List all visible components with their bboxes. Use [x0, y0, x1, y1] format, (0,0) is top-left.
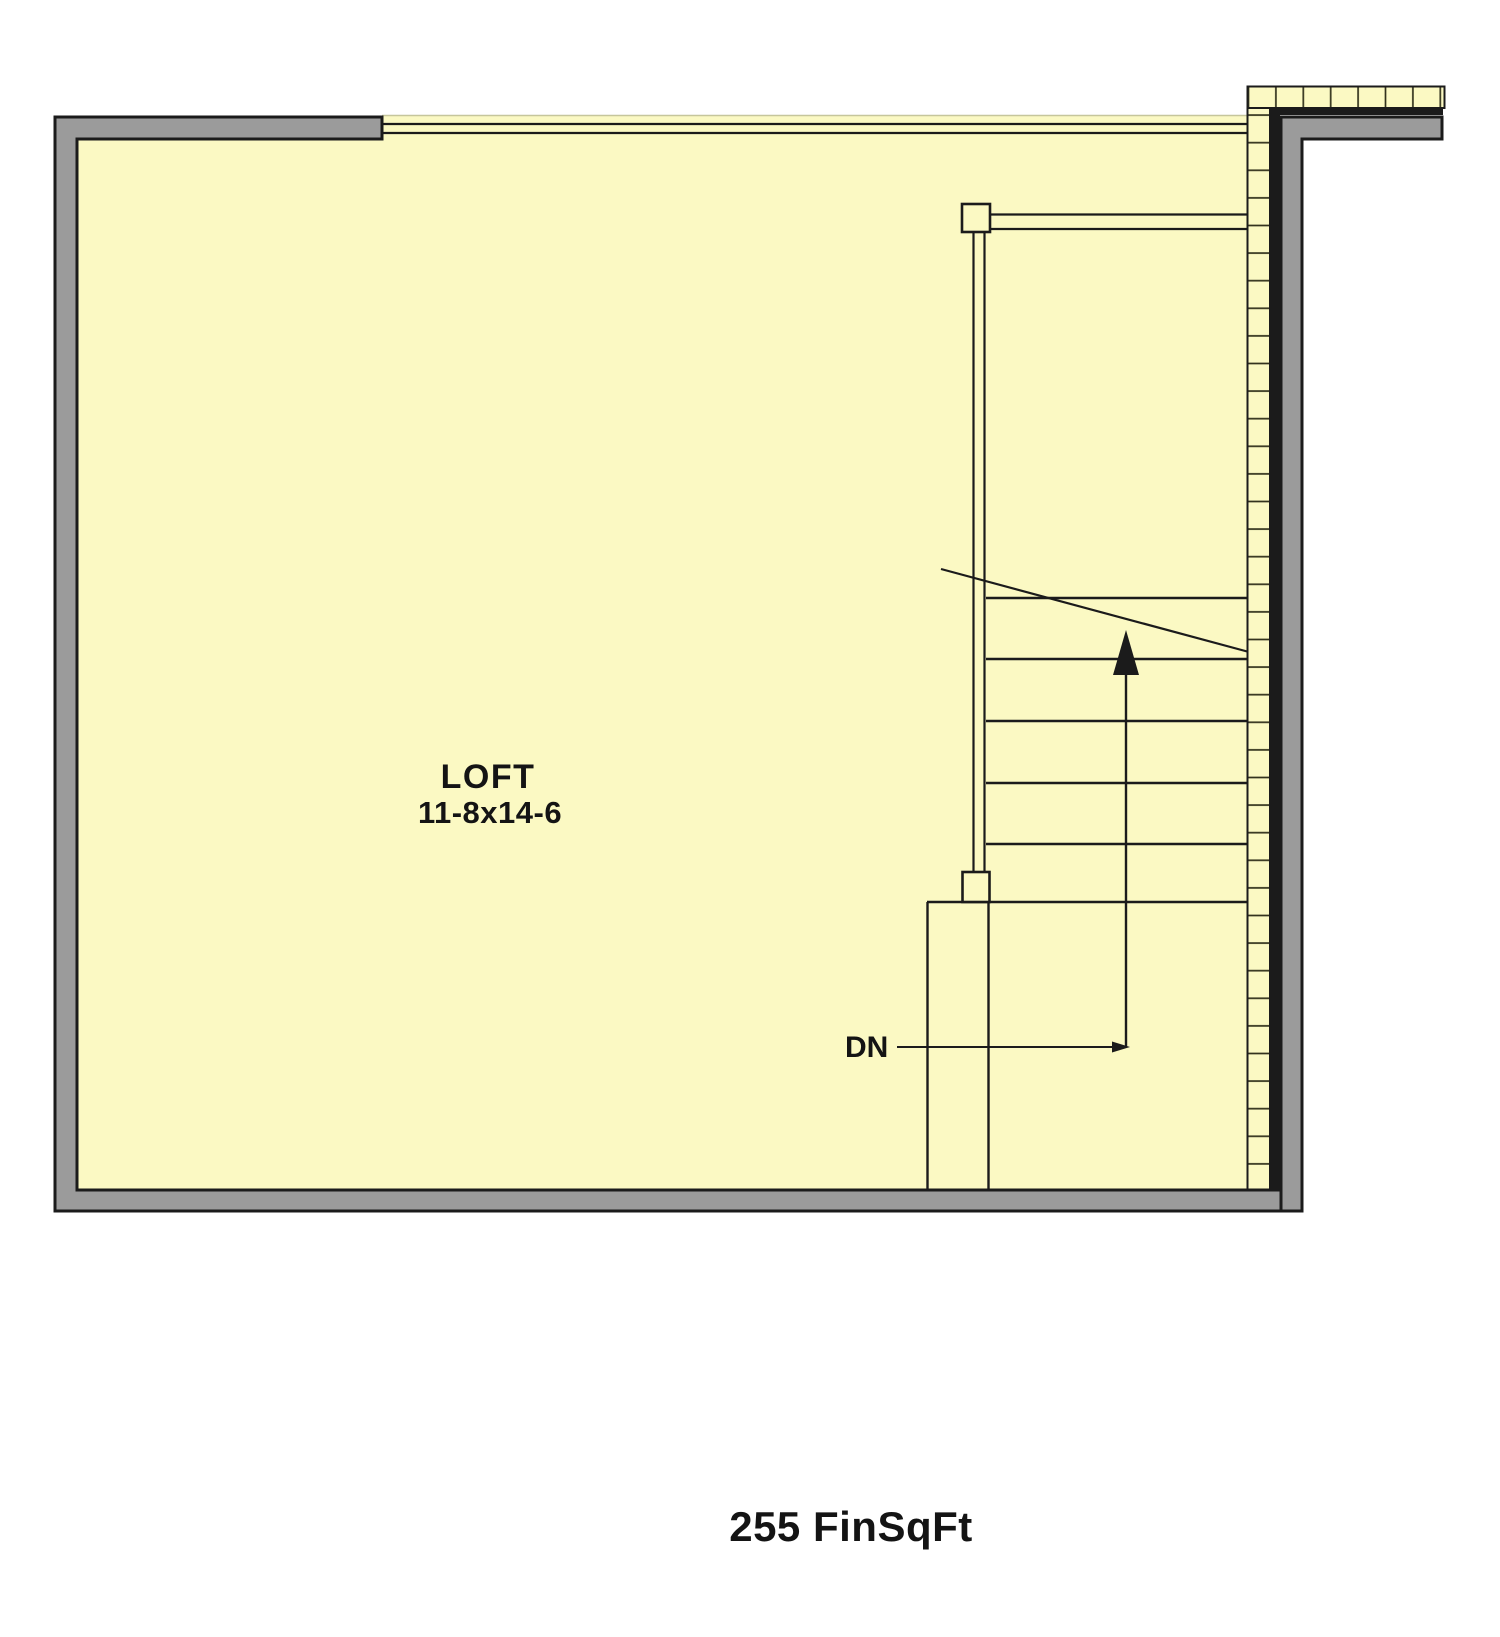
wall-hatch-top-ticks: [1248, 87, 1445, 109]
loft-floorplan-canvas: LOFT 11-8x14-6 DN 255 FinSqFt: [0, 0, 1500, 1637]
loft-floor-area: [57, 115, 1270, 1191]
stair-down-label: DN: [845, 1031, 888, 1064]
room-label: LOFT: [441, 758, 536, 796]
area-label: 255 FinSqFt: [729, 1503, 973, 1550]
railing-newel-post-top: [962, 204, 990, 232]
room-dimensions-label: 11-8x14-6: [418, 795, 562, 830]
wall-hatch-top: [1248, 87, 1445, 116]
floorplan-page: LOFT 11-8x14-6 DN 255 FinSqFt: [0, 0, 1500, 1637]
exterior-wall-right: [1281, 117, 1442, 1211]
wall-hatch-right-ticks: [1248, 87, 1271, 1191]
wall-hatch-right: [1248, 87, 1281, 1192]
wall-hatch-right-divider: [1271, 107, 1280, 1191]
wall-hatch-top-divider: [1271, 107, 1443, 115]
railing-newel-post-bottom: [963, 872, 990, 902]
